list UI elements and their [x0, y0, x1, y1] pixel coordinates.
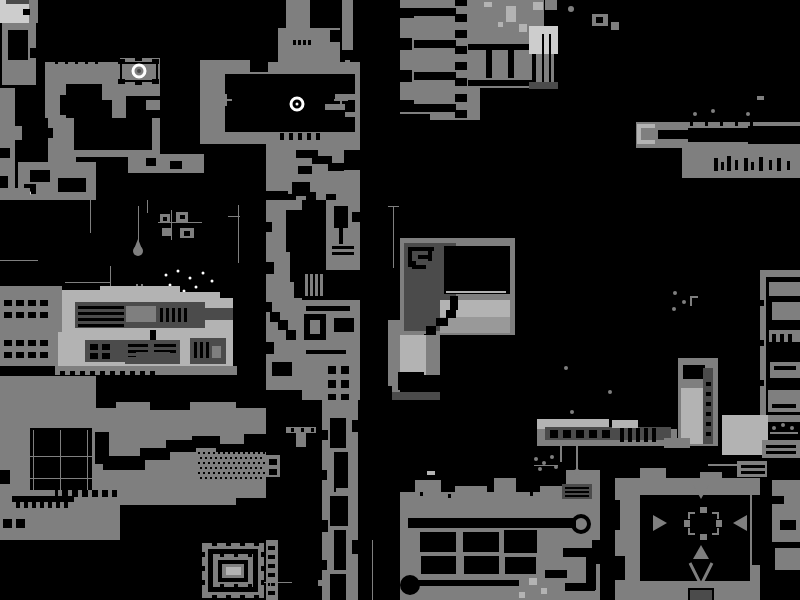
game-map	[0, 0, 800, 600]
region-map-canvas	[0, 0, 800, 600]
